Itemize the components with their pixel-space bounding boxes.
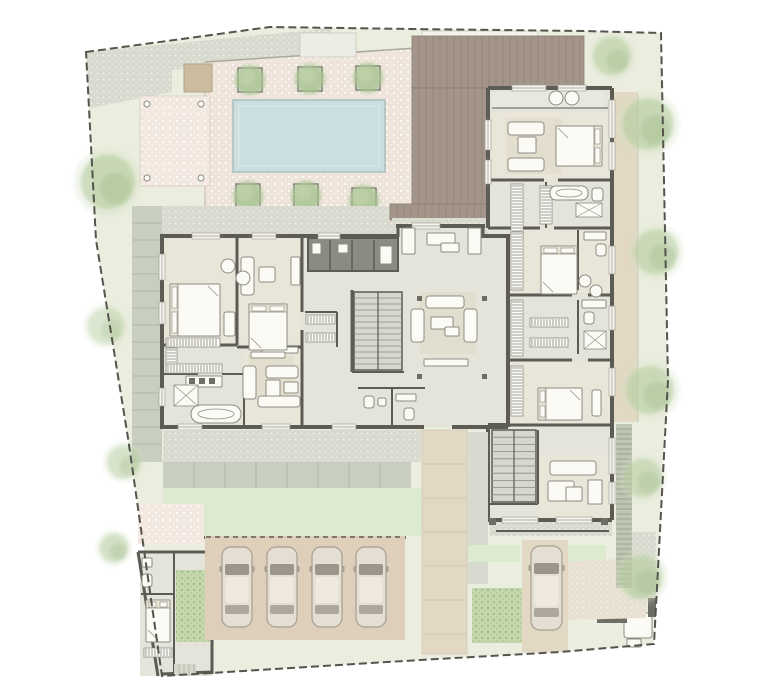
- wood-deck-south: [390, 204, 492, 220]
- main-stair: [354, 292, 402, 370]
- west-paver-path: [132, 206, 162, 462]
- north-walk: [162, 206, 392, 236]
- lounge-terrace: [140, 96, 210, 186]
- wood-deck-north: [412, 36, 584, 88]
- floor-plan-svg: [0, 0, 768, 694]
- wing-terrace-strip: [492, 92, 604, 108]
- staff-courtyard: [176, 570, 210, 642]
- wood-deck-west: [412, 88, 488, 206]
- floor-plan-page: [0, 0, 768, 694]
- pink-patch: [138, 504, 204, 544]
- garden-planter-box: [184, 64, 212, 92]
- garden-courtyard: [472, 588, 522, 643]
- swimming-pool: [233, 100, 385, 172]
- top-gate-pad: [300, 33, 356, 57]
- central-walkway: [422, 430, 467, 654]
- south-paver-row: [163, 462, 411, 488]
- south-walk: [163, 430, 421, 462]
- se-stair: [492, 430, 536, 502]
